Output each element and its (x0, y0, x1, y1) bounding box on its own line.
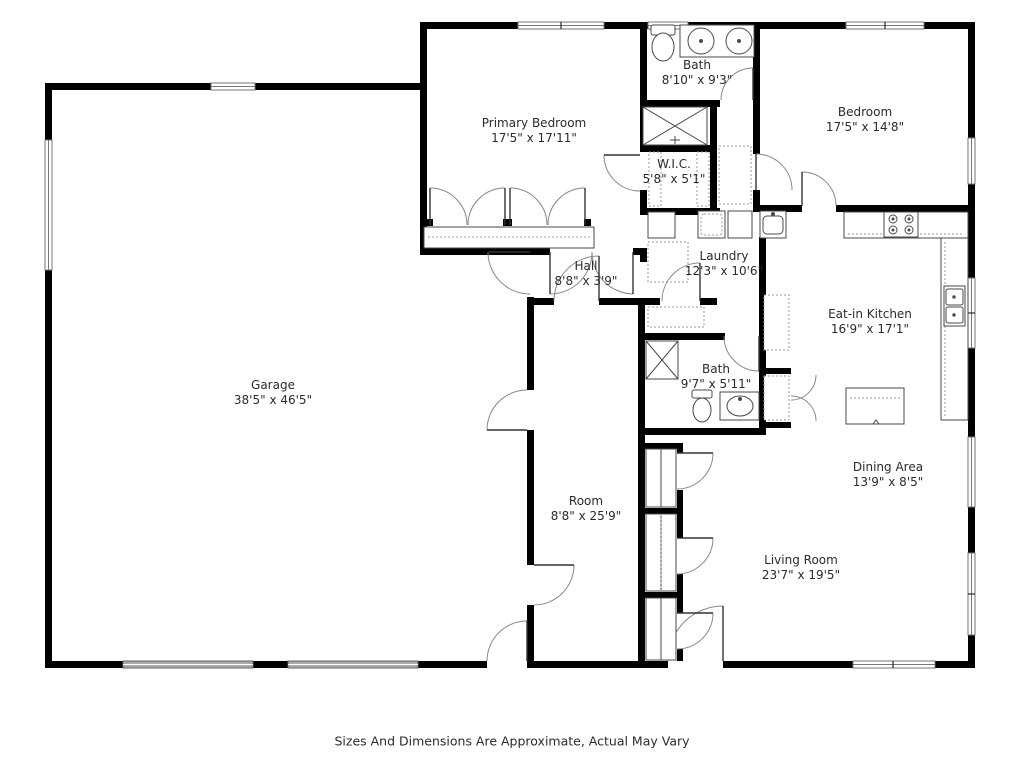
fixtures (424, 25, 968, 660)
door-arc-garage-hall (488, 252, 530, 294)
door-arc-closet-3 (677, 613, 713, 649)
door-arc-bedroom-side (756, 154, 792, 190)
door-arc-closet-a1 (430, 188, 467, 225)
disclaimer-text: Sizes And Dimensions Are Approximate, Ac… (334, 734, 689, 749)
door-arc-room-low (534, 565, 574, 605)
dryer (728, 211, 752, 238)
doors (430, 68, 836, 661)
garage-door-2 (288, 661, 418, 668)
toilet-bath-2 (692, 390, 712, 422)
stove (884, 212, 918, 237)
hall-cabinet (648, 307, 704, 327)
linen-closet (719, 146, 751, 204)
door-arc-closet-b1 (510, 188, 547, 225)
window-bedroom-right (968, 138, 975, 184)
door-arc-wic (604, 155, 640, 191)
door-arc-closet-2 (677, 538, 713, 574)
door-arc-bath-1 (721, 68, 753, 100)
living-closets (646, 449, 676, 660)
garage-door-1 (123, 661, 253, 668)
kitchen-sink (944, 286, 965, 326)
door-arc-closet-1 (677, 453, 713, 489)
windows (45, 22, 975, 668)
shower-bath-1 (643, 107, 707, 145)
window-living-bottom (853, 661, 935, 668)
kitchen-counter-right (941, 238, 968, 420)
window-primary-bedroom (518, 22, 604, 29)
door-arc-room-mid (487, 390, 527, 430)
door-arc-primary-right (592, 252, 633, 294)
door-arc-closet-a2 (468, 188, 505, 225)
window-dining-right (968, 437, 975, 507)
shower-bath-2 (646, 341, 678, 379)
window-bedroom-top (846, 22, 924, 29)
window-garage-left (45, 140, 52, 270)
laundry-counter (648, 242, 688, 282)
wic-shelves (649, 152, 709, 206)
vanity-bath-1 (680, 25, 754, 57)
window-garage-top (211, 83, 255, 90)
door-arc-closet-b2 (548, 188, 585, 225)
primary-closet (424, 227, 594, 248)
kitchen-island (846, 388, 904, 424)
laundry-cabinet (648, 212, 675, 238)
door-arc-garage-rear (487, 621, 527, 661)
door-arc-bedroom-main (802, 172, 836, 206)
floor-plan-page: Bath 8'10" x 9'3" Primary Bedroom 17'5" … (0, 0, 1024, 768)
pantry-shelves (764, 295, 789, 420)
window-living-right (968, 553, 975, 635)
door-arc-hall-room (554, 256, 599, 301)
door-arc-bath-2 (724, 336, 759, 371)
window-kitchen-right (968, 278, 975, 348)
laundry-sink (760, 211, 786, 238)
floor-plan-drawing (0, 0, 1024, 768)
washer (698, 211, 725, 238)
vanity-bath-2 (720, 392, 759, 420)
toilet-bath-1 (651, 25, 675, 61)
walls (45, 22, 975, 668)
